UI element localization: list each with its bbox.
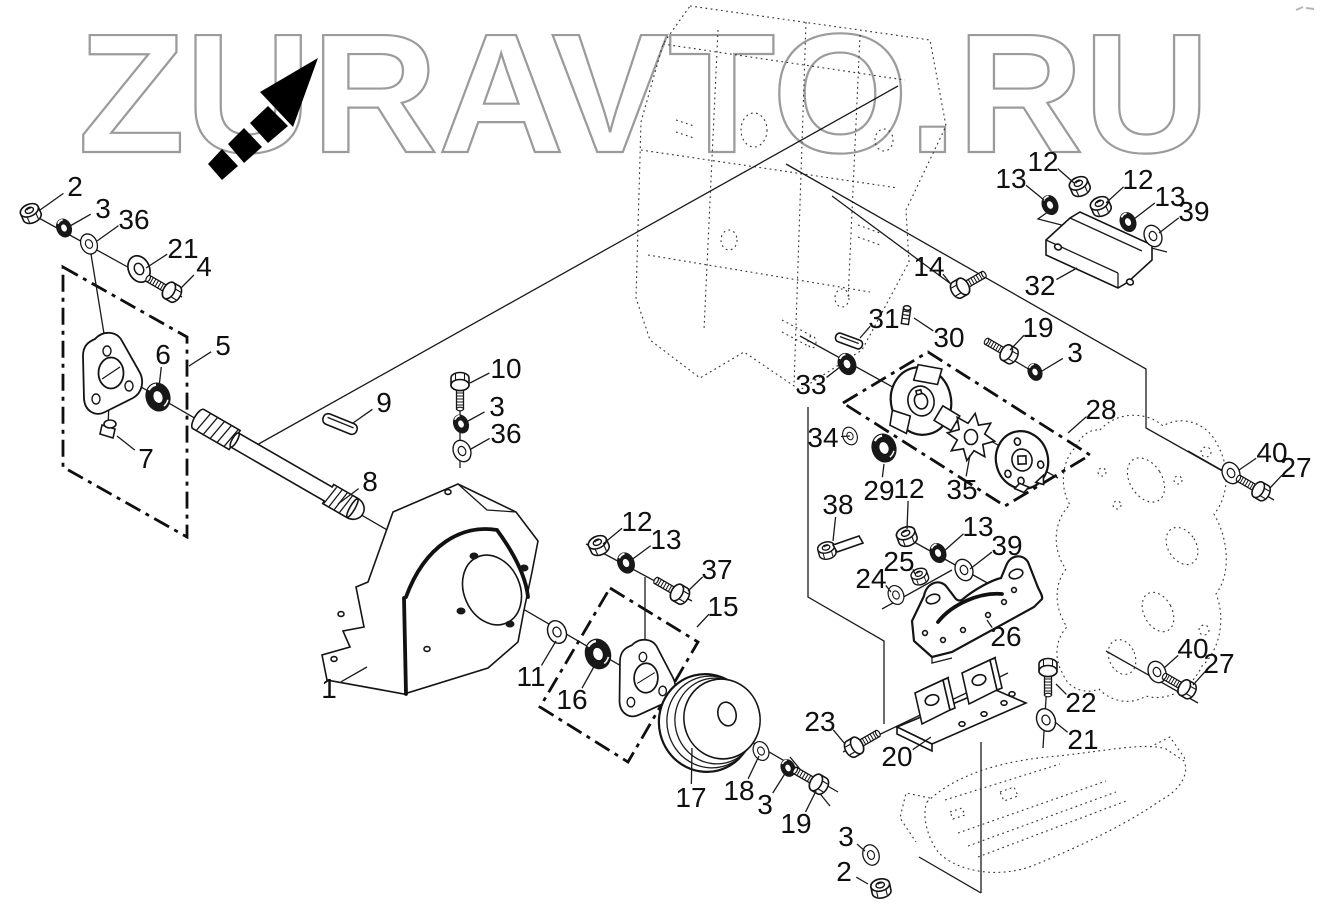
leader-line xyxy=(97,226,119,241)
leader-line xyxy=(1106,187,1124,203)
callout-27: 27 xyxy=(1203,648,1234,679)
leader-line xyxy=(471,438,490,449)
part-12-nut xyxy=(586,533,611,558)
callout-12: 12 xyxy=(893,473,924,504)
part-2-nut xyxy=(18,201,43,226)
callout-37: 37 xyxy=(701,554,732,585)
part-39-washer xyxy=(952,556,977,583)
callout-13: 13 xyxy=(995,163,1026,194)
callout-36: 36 xyxy=(490,418,521,449)
callout-25: 25 xyxy=(883,546,914,577)
callout-4: 4 xyxy=(196,251,212,282)
callout-26: 26 xyxy=(990,621,1021,652)
callout-38: 38 xyxy=(822,489,853,520)
callout-32: 32 xyxy=(1024,270,1055,301)
callout-39: 39 xyxy=(1178,196,1209,227)
leader-line xyxy=(40,193,63,210)
callout-19: 19 xyxy=(780,808,811,839)
callout-35: 35 xyxy=(946,474,977,505)
leader-line xyxy=(1134,203,1155,219)
callout-11: 11 xyxy=(516,661,545,692)
part-13-washer xyxy=(614,550,637,576)
leader-line xyxy=(907,501,908,529)
callout-1: 1 xyxy=(321,673,337,704)
leader-line xyxy=(841,436,850,437)
callout-15: 15 xyxy=(707,591,738,622)
part-24-washer xyxy=(885,583,907,607)
callout-2: 2 xyxy=(67,171,83,202)
exploded-parts-diagram: ZURAVTO.RU xyxy=(0,0,1321,917)
leader-line xyxy=(603,528,622,544)
callout-13: 13 xyxy=(650,524,681,555)
callout-20: 20 xyxy=(881,741,912,772)
part-31-key xyxy=(834,332,863,350)
callout-22: 22 xyxy=(1065,687,1096,718)
part-30-set-screw xyxy=(901,305,911,324)
callout-3: 3 xyxy=(1067,337,1083,368)
callout-13: 13 xyxy=(962,511,993,542)
part-21-washer xyxy=(1033,706,1059,735)
part-26-saddle-bracket xyxy=(912,556,1042,663)
part-2-nut xyxy=(870,877,893,900)
callout-12: 12 xyxy=(621,506,652,537)
callout-14: 14 xyxy=(913,251,944,282)
callout-33: 33 xyxy=(795,369,826,400)
callout-28: 28 xyxy=(1085,394,1116,425)
callout-16: 16 xyxy=(556,684,587,715)
leader-line xyxy=(833,517,836,541)
callout-2: 2 xyxy=(836,856,852,887)
callout-17: 17 xyxy=(675,782,706,813)
leader-line xyxy=(856,877,868,884)
callout-23: 23 xyxy=(804,706,835,737)
leader-line xyxy=(630,546,651,561)
leader-line xyxy=(1159,218,1179,233)
part-13-washer xyxy=(1039,193,1061,217)
leader-line xyxy=(1042,358,1063,371)
part-37-bolt xyxy=(650,572,692,607)
callout-3: 3 xyxy=(757,789,773,820)
leader-line xyxy=(1068,417,1086,433)
part-36-washer xyxy=(450,437,475,464)
callout-12: 12 xyxy=(1122,164,1153,195)
callout-34: 34 xyxy=(807,422,838,453)
callout-24: 24 xyxy=(855,563,886,594)
part-3-washer xyxy=(860,843,882,868)
part-28-hub-flange xyxy=(990,426,1055,498)
part-14-bolt xyxy=(948,266,990,301)
callout-30: 30 xyxy=(933,322,964,353)
leader-line xyxy=(1164,655,1178,668)
leader-line xyxy=(943,534,964,552)
leader-line xyxy=(1239,458,1256,470)
axis-lines xyxy=(28,86,1274,893)
part-40-washer xyxy=(1145,658,1170,685)
callout-7: 7 xyxy=(138,443,154,474)
callout-36: 36 xyxy=(118,204,149,235)
callout-9: 9 xyxy=(376,387,392,418)
part-38-wing-fitting xyxy=(816,536,863,561)
callout-18: 18 xyxy=(723,775,754,806)
part-13-washer xyxy=(927,541,949,565)
leader-line xyxy=(470,373,489,383)
part-19-bolt xyxy=(789,762,831,797)
part-10-bolt xyxy=(451,373,469,411)
callout-3: 3 xyxy=(838,821,854,852)
leader-line xyxy=(468,412,485,421)
corner-watermark-mark xyxy=(1296,7,1314,10)
leader-line xyxy=(189,352,211,366)
part-22-bolt xyxy=(1039,659,1057,697)
callout-5: 5 xyxy=(215,330,231,361)
leader-line xyxy=(914,318,933,331)
part-11-washer xyxy=(544,618,570,647)
part-9-key xyxy=(321,412,358,436)
callout-21: 21 xyxy=(167,233,198,264)
callout-29: 29 xyxy=(863,475,894,506)
part-3-washer xyxy=(1025,361,1045,383)
part-4-bolt xyxy=(142,270,184,305)
leader-line xyxy=(691,748,692,784)
part-3-washer xyxy=(451,413,472,436)
callout-19: 19 xyxy=(1022,312,1053,343)
callout-8: 8 xyxy=(362,466,378,497)
callout-27: 27 xyxy=(1280,452,1311,483)
leader-line xyxy=(117,436,135,450)
callout-21: 21 xyxy=(1067,724,1098,755)
leader-line xyxy=(1056,268,1077,280)
part-6-bearing xyxy=(142,380,173,414)
part-27-bolt xyxy=(1233,470,1273,503)
watermark: ZURAVTO.RU xyxy=(78,0,1314,189)
callout-31: 31 xyxy=(868,303,899,334)
part-16-bearing xyxy=(581,636,614,672)
ghost-belt-guard xyxy=(900,737,1186,872)
part-36-washer xyxy=(77,231,100,257)
callout-10: 10 xyxy=(490,353,521,384)
part-20-base-bracket xyxy=(897,657,1026,751)
part-19-bolt xyxy=(981,333,1021,366)
part-23-bolt xyxy=(842,725,884,760)
callout-12: 12 xyxy=(1027,146,1058,177)
callout-3: 3 xyxy=(95,193,111,224)
part-7-grease-fitting xyxy=(100,420,116,438)
callout-6: 6 xyxy=(155,339,171,370)
leader-line xyxy=(146,254,167,268)
leader-line xyxy=(181,275,194,288)
part-12-nut xyxy=(1088,194,1113,219)
leader-line xyxy=(773,772,786,793)
part-5-flange-plate xyxy=(83,333,142,414)
leader-line xyxy=(70,214,91,226)
leader-line xyxy=(353,409,372,423)
callout-39: 39 xyxy=(991,530,1022,561)
leader-line xyxy=(970,552,992,569)
leader-line xyxy=(1055,722,1068,732)
